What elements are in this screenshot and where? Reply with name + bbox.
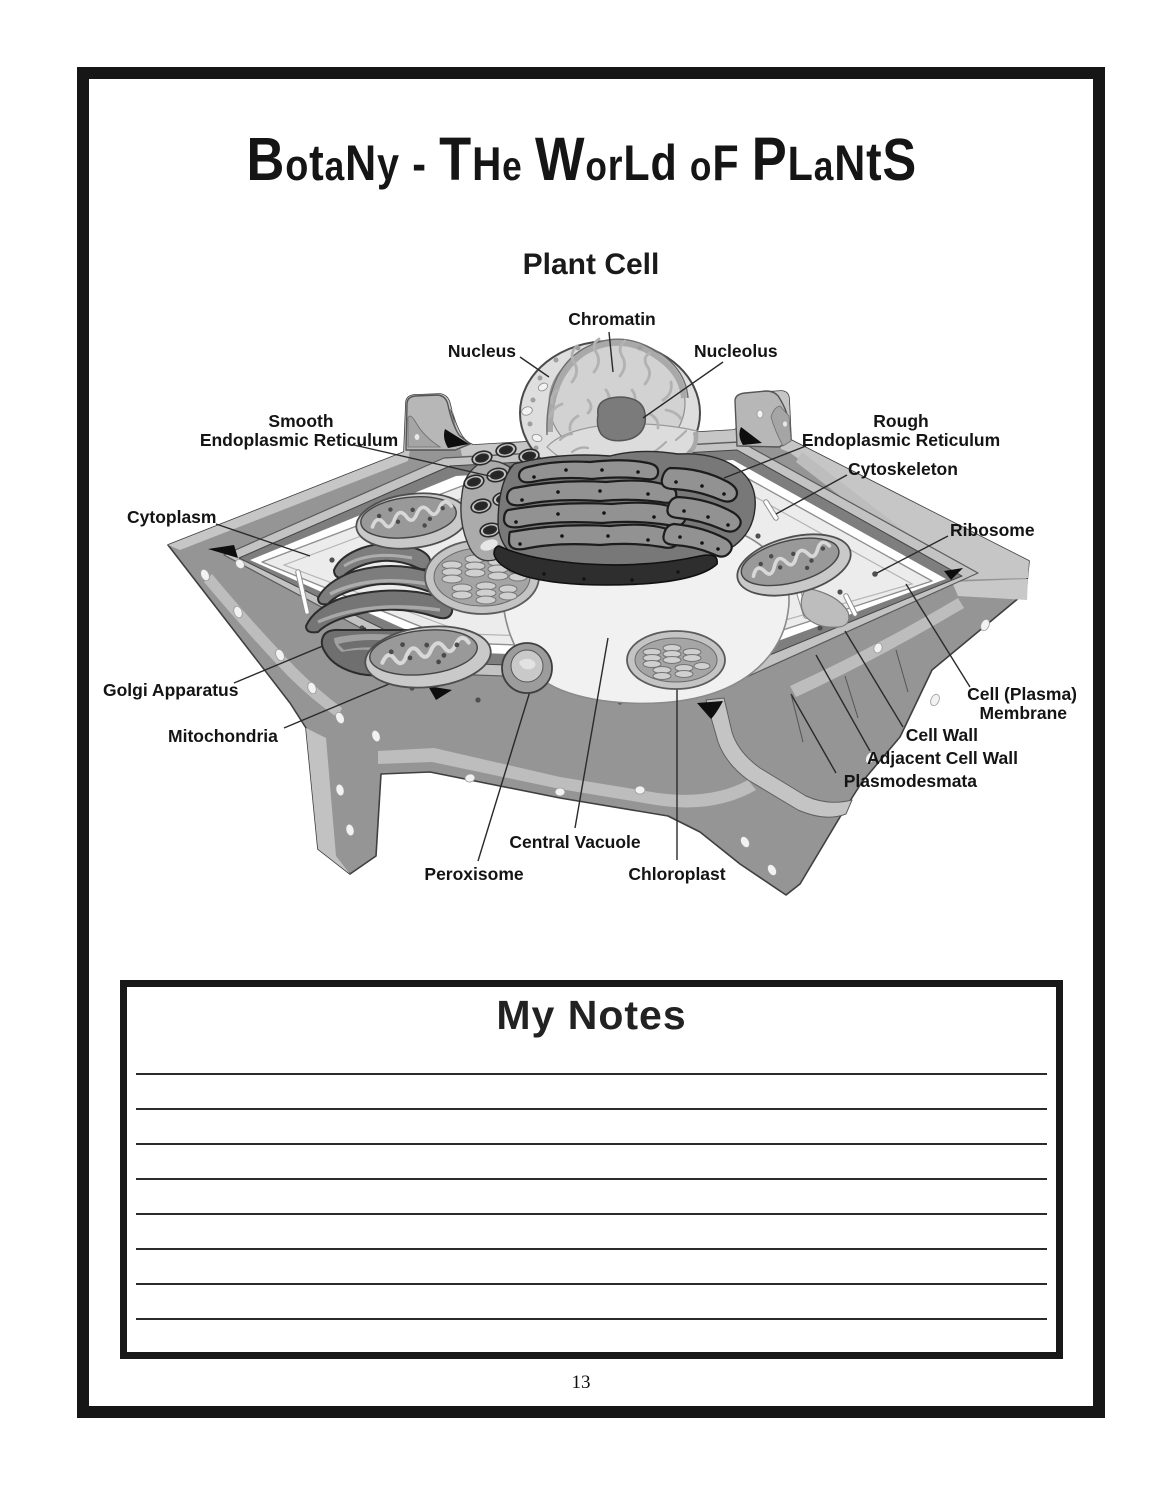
svg-text:Rough: Rough <box>873 411 928 431</box>
svg-text:Nucleolus: Nucleolus <box>694 341 778 361</box>
svg-text:Membrane: Membrane <box>979 703 1067 723</box>
svg-text:Cytoplasm: Cytoplasm <box>127 507 216 527</box>
svg-text:Plasmodesmata: Plasmodesmata <box>844 771 978 791</box>
svg-text:Ribosome: Ribosome <box>950 520 1035 540</box>
svg-text:Peroxisome: Peroxisome <box>424 864 523 884</box>
svg-text:Mitochondria: Mitochondria <box>168 726 278 746</box>
svg-text:Cell (Plasma): Cell (Plasma) <box>967 684 1077 704</box>
svg-text:Golgi Apparatus: Golgi Apparatus <box>103 680 239 700</box>
svg-text:Central Vacuole: Central Vacuole <box>509 832 641 852</box>
svg-text:Chloroplast: Chloroplast <box>628 864 725 884</box>
svg-text:Endoplasmic Reticulum: Endoplasmic Reticulum <box>200 430 398 450</box>
svg-text:Adjacent Cell Wall: Adjacent Cell Wall <box>867 748 1018 768</box>
svg-text:Endoplasmic Reticulum: Endoplasmic Reticulum <box>802 430 1000 450</box>
svg-text:Smooth: Smooth <box>268 411 333 431</box>
svg-text:Cytoskeleton: Cytoskeleton <box>848 459 958 479</box>
svg-text:Cell Wall: Cell Wall <box>906 725 978 745</box>
svg-text:Chromatin: Chromatin <box>568 309 656 329</box>
svg-text:Nucleus: Nucleus <box>448 341 516 361</box>
